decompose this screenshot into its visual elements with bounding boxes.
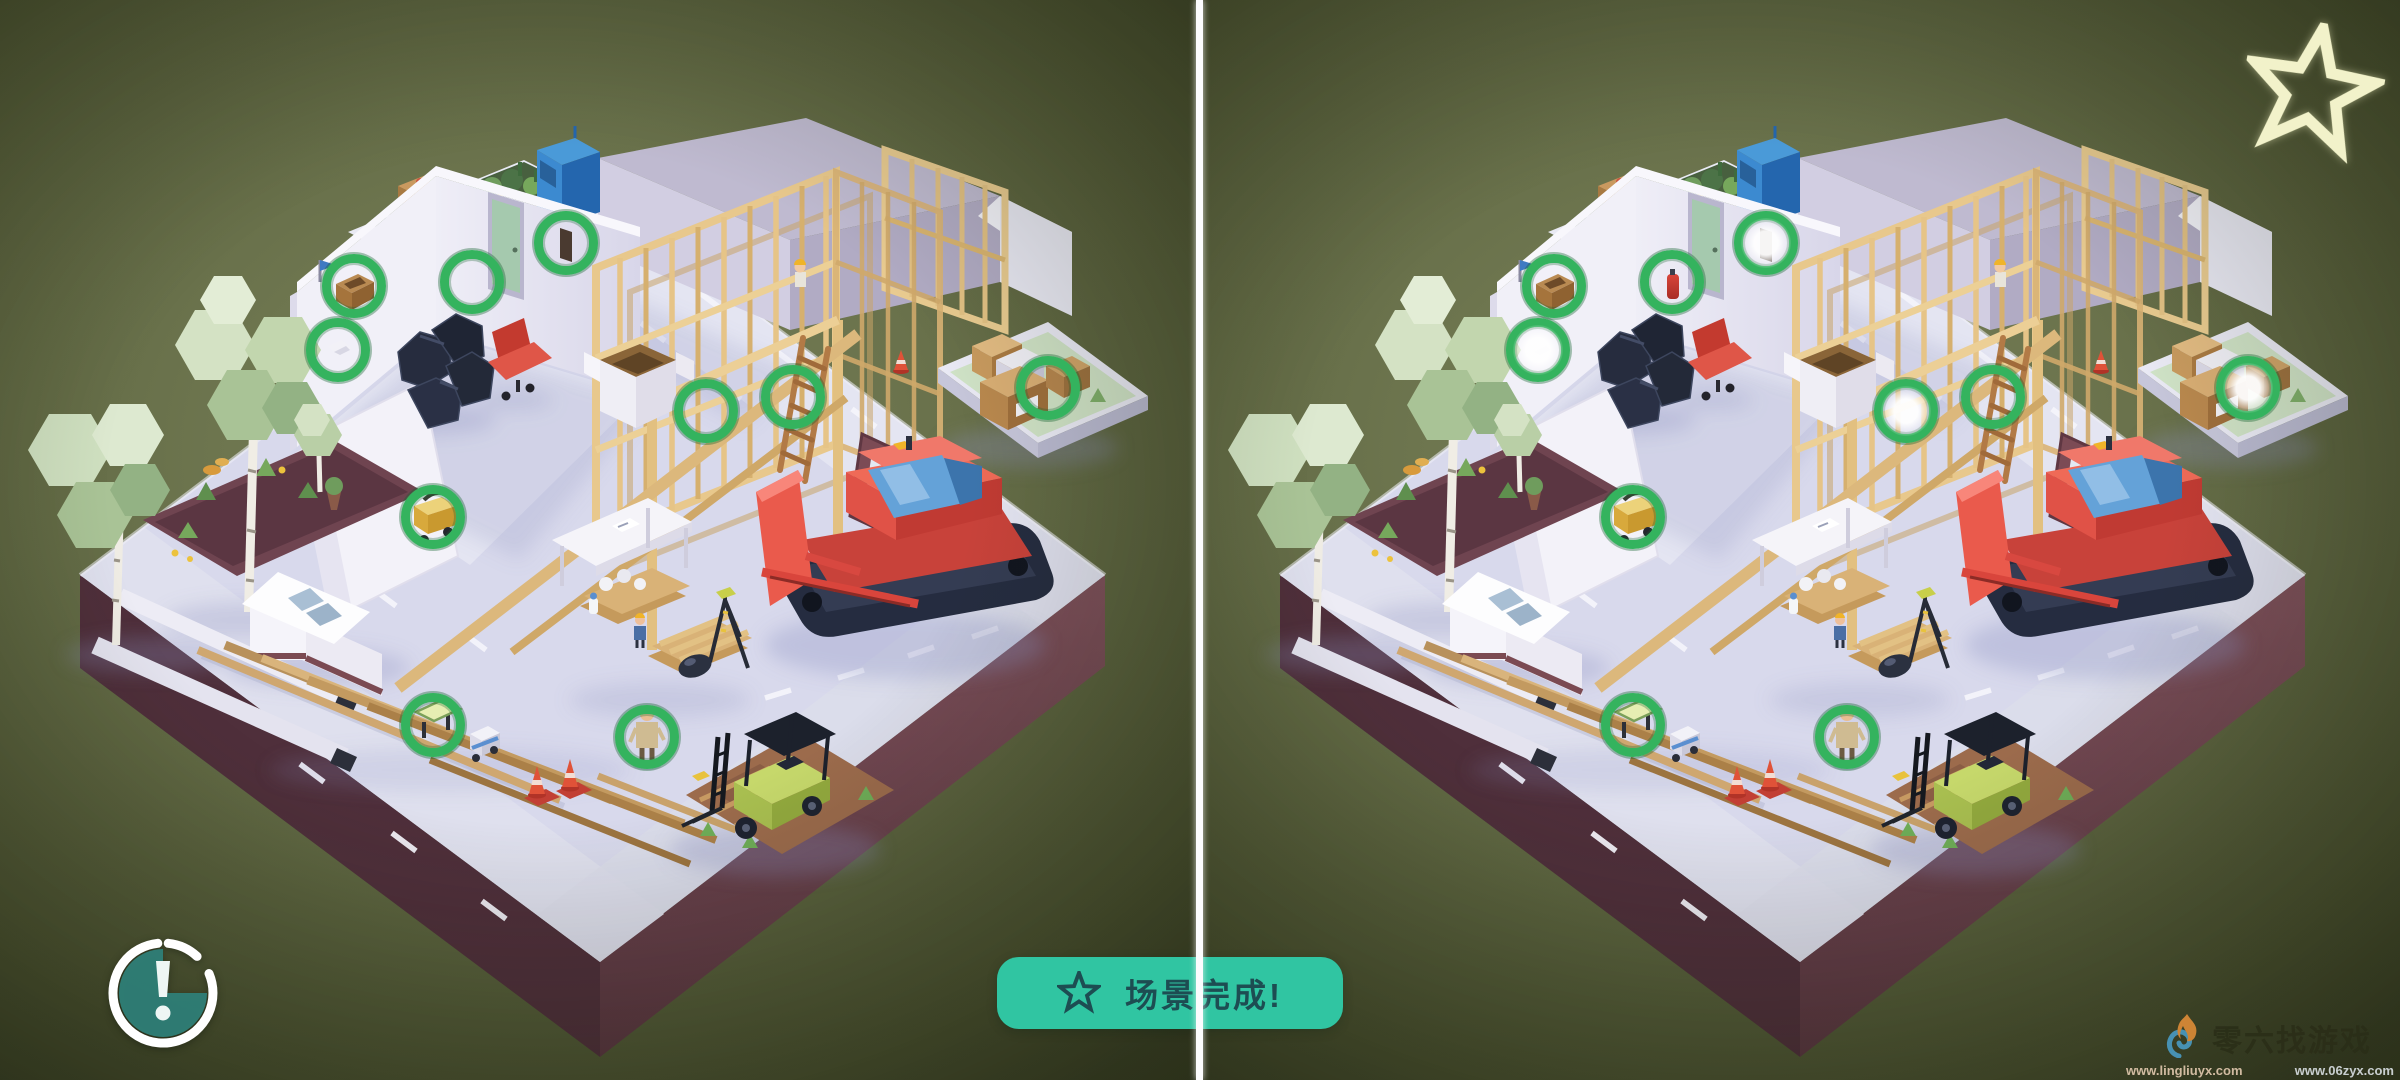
difference-marker-beam-joint[interactable] (674, 379, 738, 443)
difference-marker-beam-joint[interactable] (1874, 379, 1938, 443)
watermark-url-left: www.lingliuyx.com (2126, 1063, 2243, 1078)
watermark-brand: 零六找游戏 (2212, 1016, 2372, 1060)
panel-divider (1196, 0, 1203, 1080)
banner-star-icon (1057, 971, 1101, 1015)
difference-marker-green-box[interactable] (401, 693, 465, 757)
difference-marker-wall-box[interactable] (322, 254, 386, 318)
panel-left[interactable] (0, 0, 1200, 1080)
markers-left (0, 0, 1200, 1080)
difference-marker-toolbox[interactable] (401, 485, 465, 549)
difference-marker-toolbox[interactable] (1601, 485, 1665, 549)
difference-marker-green-box[interactable] (1601, 693, 1665, 757)
difference-marker-worker[interactable] (615, 705, 679, 769)
completion-banner: 场景完成! (997, 957, 1343, 1029)
watermark-url-right: www.06zyx.com (2295, 1063, 2394, 1078)
difference-marker-boxes-stack[interactable] (2216, 356, 2280, 420)
watermark: 零六找游戏 www.lingliuyx.com www.06zyx.com (2126, 1004, 2394, 1080)
game-stage: 场景完成! 零六找游戏 www.lingliuyx.com www.06zyx.… (0, 0, 2400, 1080)
markers-right (1200, 0, 2400, 1080)
timer-indicator[interactable] (103, 933, 223, 1053)
difference-marker-doorway[interactable] (534, 211, 598, 275)
banner-text: 场景完成! (1125, 969, 1283, 1017)
difference-marker-doorway[interactable] (1734, 211, 1798, 275)
difference-marker-wall-left[interactable] (1506, 318, 1570, 382)
difference-marker-wall-corner[interactable] (1640, 250, 1704, 314)
difference-marker-ladder[interactable] (1961, 365, 2025, 429)
difference-marker-wall-left[interactable] (306, 318, 370, 382)
difference-marker-wall-box[interactable] (1522, 254, 1586, 318)
watermark-logo-icon (2164, 1010, 2206, 1058)
score-star-icon (2231, 11, 2393, 173)
panel-right[interactable] (1200, 0, 2400, 1080)
difference-marker-boxes-stack[interactable] (1016, 356, 1080, 420)
difference-marker-wall-corner[interactable] (440, 250, 504, 314)
difference-marker-ladder[interactable] (761, 365, 825, 429)
difference-marker-worker[interactable] (1815, 705, 1879, 769)
